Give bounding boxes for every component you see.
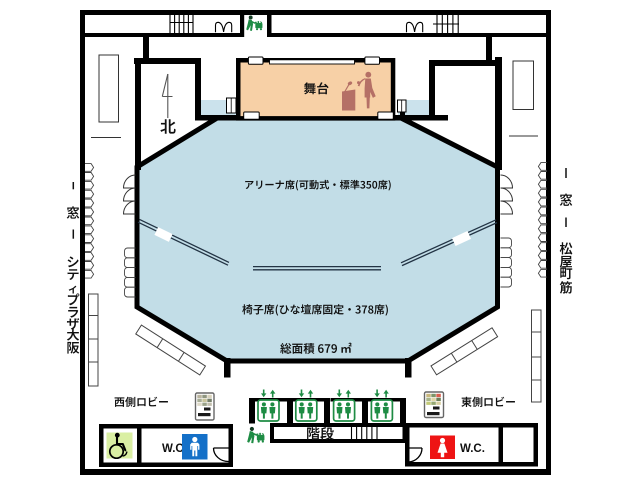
svg-text:W.C: W.C <box>162 443 184 455</box>
svg-text:W.C.: W.C. <box>460 443 485 455</box>
